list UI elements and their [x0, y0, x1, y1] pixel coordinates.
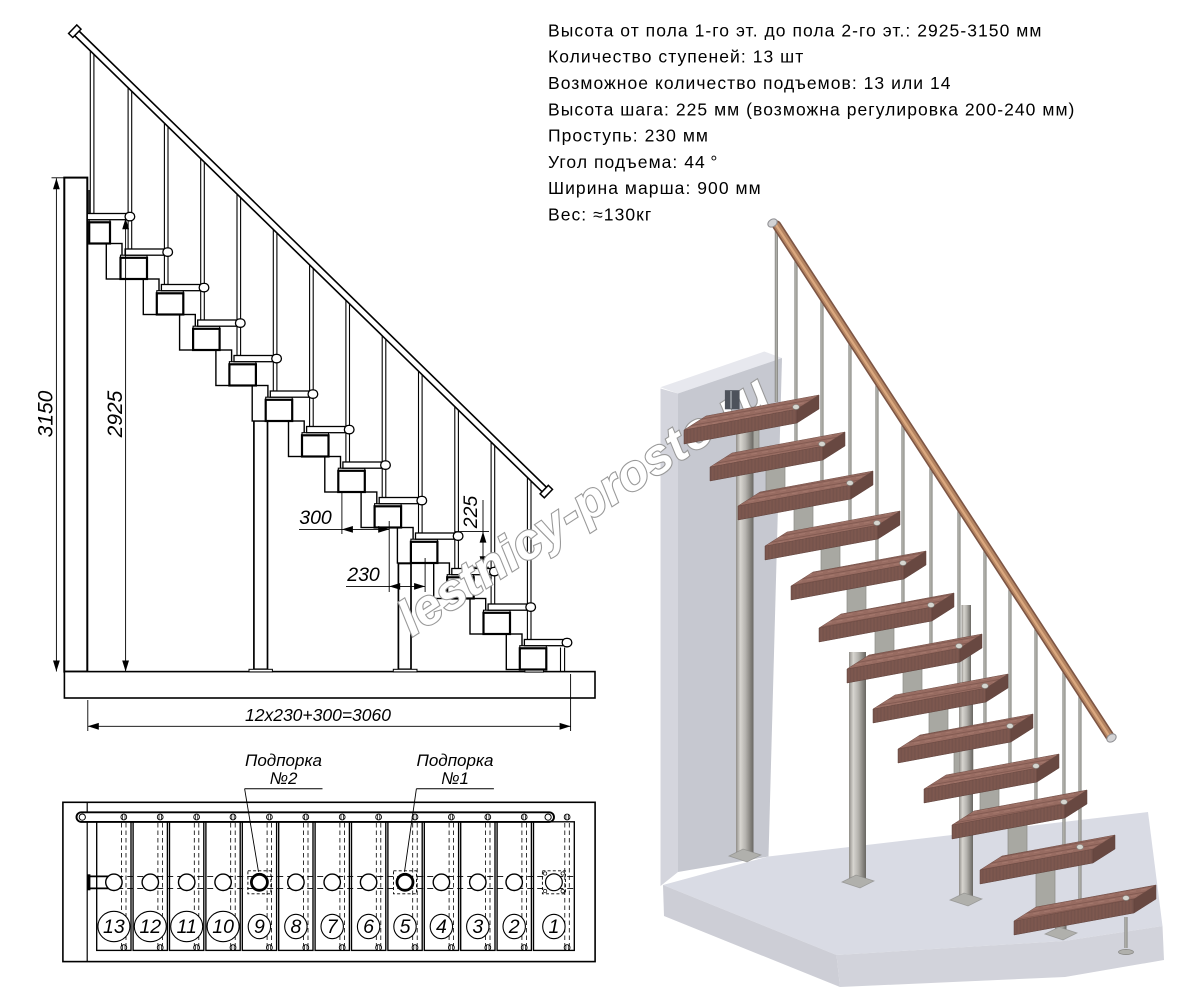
svg-text:10: 10: [212, 916, 234, 938]
svg-text:3150: 3150: [35, 390, 58, 437]
svg-text:13: 13: [103, 916, 125, 938]
svg-text:Проступь: 230 мм: Проступь: 230 мм: [548, 126, 709, 146]
svg-text:5: 5: [400, 916, 411, 938]
svg-text:Подпорка: Подпорка: [417, 751, 494, 770]
svg-text:7: 7: [327, 916, 339, 938]
svg-text:6: 6: [363, 916, 374, 938]
svg-text:1: 1: [548, 916, 559, 938]
svg-text:12: 12: [139, 916, 161, 938]
svg-text:Ширина марша: 900 мм: Ширина марша: 900 мм: [548, 178, 762, 198]
svg-text:12x230+300=3060: 12x230+300=3060: [245, 705, 391, 725]
svg-text:9: 9: [254, 916, 265, 938]
svg-text:Высота от пола 1-го эт. до пол: Высота от пола 1-го эт. до пола 2-го эт.…: [548, 20, 1042, 40]
svg-text:Подпорка: Подпорка: [245, 751, 322, 770]
svg-text:Вес: ≈130кг: Вес: ≈130кг: [548, 205, 652, 225]
svg-text:225: 225: [460, 496, 482, 530]
svg-text:4: 4: [436, 916, 447, 938]
svg-text:Возможное количество подъемов:: Возможное количество подъемов: 13 или 14: [548, 73, 952, 93]
svg-text:11: 11: [177, 916, 197, 938]
svg-text:3: 3: [472, 916, 483, 938]
svg-text:300: 300: [299, 507, 332, 529]
svg-text:2925: 2925: [104, 390, 127, 438]
svg-text:Угол подъема: 44 °: Угол подъема: 44 °: [548, 152, 718, 172]
svg-text:№2: №2: [270, 769, 298, 788]
svg-text:230: 230: [346, 564, 380, 586]
svg-text:Высота шага: 225 мм (возможна: Высота шага: 225 мм (возможна регулировк…: [548, 99, 1075, 119]
svg-text:2: 2: [508, 916, 520, 938]
svg-text:Количество ступеней: 13 шт: Количество ступеней: 13 шт: [548, 47, 804, 67]
svg-text:№1: №1: [441, 769, 469, 788]
svg-text:8: 8: [290, 916, 301, 938]
